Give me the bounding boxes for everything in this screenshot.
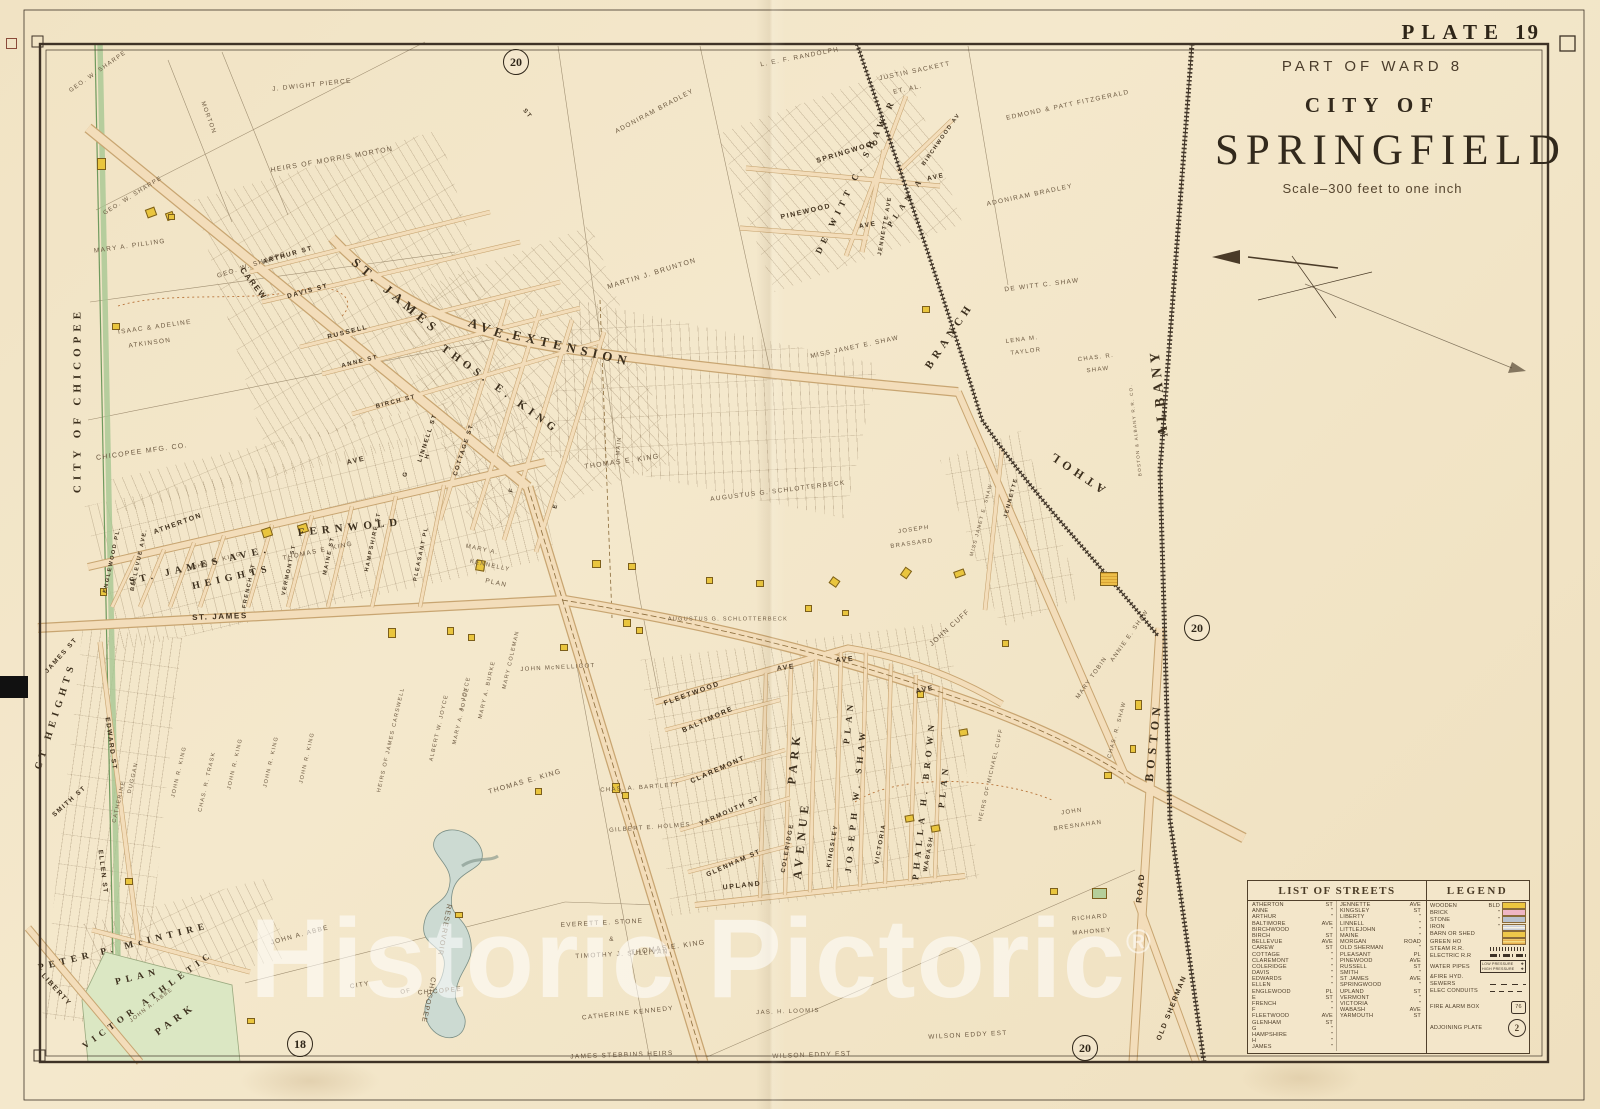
legend-item: SEWERS: [1430, 981, 1526, 988]
wooden-building: [842, 610, 849, 616]
minor-road: [200, 536, 224, 607]
street-suffix: ": [1331, 1044, 1333, 1050]
list-of-streets-title: LIST OF STREETS: [1248, 885, 1426, 897]
wooden-building: [388, 628, 396, 638]
wooden-building: [1002, 640, 1009, 647]
wooden-building: [1135, 700, 1142, 710]
wooden-building: [560, 644, 568, 651]
streets-column-2: JENNETTEAVEKINGSLEYSTLIBERTY"LINNELL"LIT…: [1336, 901, 1424, 1053]
wooden-building: [447, 627, 454, 635]
panel-titles: LIST OF STREETS LEGEND: [1248, 881, 1529, 901]
watermark: Historic Pictoric®: [250, 894, 1250, 1023]
wooden-building: [922, 306, 930, 313]
city-of-label: CITY OF: [1215, 93, 1530, 118]
legend-label: GREEN HO: [1430, 939, 1502, 945]
watermark-text: Historic Pictoric: [250, 896, 1126, 1021]
legend-item: WATER PIPESLOW PRESSURE✚HIGH PRESSURE✚: [1430, 960, 1526, 974]
wooden-building: [125, 878, 133, 885]
legend-swatch: [1502, 924, 1526, 931]
street-list-item: JAMES": [1252, 1044, 1333, 1050]
wooden-building: [622, 792, 629, 799]
registration-mark: [6, 38, 17, 49]
legend-swatch: [1502, 909, 1526, 916]
legend-item: ELEC CONDUITS: [1430, 988, 1526, 995]
wooden-building: [535, 788, 542, 795]
legend-label: WOODEN: [1430, 903, 1489, 909]
wooden-building: [805, 605, 812, 612]
street-suffix: ST: [1413, 1013, 1421, 1019]
wooden-building: [1130, 745, 1136, 753]
legend-label: SEWERS: [1430, 981, 1490, 987]
legend-label: ELECTRIC R.R: [1430, 953, 1490, 959]
atlas-map-page: GEO. W. SHARPEGEO. W. SHARPEGEO. W. SHAR…: [0, 0, 1600, 1109]
legend-label: IRON: [1430, 924, 1498, 930]
minor-roads: [112, 485, 941, 898]
legend-item: GREEN HO: [1430, 938, 1526, 945]
steam-rr-sample: [1490, 947, 1526, 951]
map-label: CITY OF CHICOPEE: [73, 307, 84, 493]
wooden-building: [468, 634, 475, 641]
legend-suffix: BLD: [1489, 903, 1500, 909]
ward-subtitle: PART OF WARD 8: [1215, 58, 1530, 75]
scale-note: Scale–300 feet to one inch: [1215, 181, 1530, 196]
conduit-sample: [1490, 991, 1526, 992]
wooden-building: [592, 560, 601, 568]
legend-item: BARN OR SHED: [1430, 931, 1526, 938]
legend-label: STONE: [1430, 917, 1498, 923]
legend-item: ADJOINING PLATE2: [1430, 1019, 1526, 1037]
city-title: SPRINGFIELD: [1215, 126, 1530, 175]
plate-label: PLATE: [1402, 20, 1505, 44]
wooden-building: [628, 563, 636, 570]
legend-label: BRICK: [1430, 910, 1498, 916]
wooden-building: [1100, 572, 1118, 586]
victor-athletic-park: [82, 952, 240, 1062]
legend-swatch: [1502, 938, 1526, 945]
legend-item: STONE": [1430, 916, 1526, 923]
electric-rr-sample: [1490, 954, 1526, 957]
adjoining-plate-marker: 18: [287, 1031, 313, 1057]
legend-label: BARN OR SHED: [1430, 931, 1502, 937]
street-name: HAMPSHIRE: [1252, 1032, 1287, 1038]
compass-rose: [1212, 250, 1526, 373]
fire-alarm-box-sample: 76: [1511, 1001, 1526, 1014]
street-list-item: YARMOUTHST: [1340, 1013, 1421, 1019]
sewer-sample: [1490, 984, 1526, 986]
legend-item: ELECTRIC R.R: [1430, 952, 1526, 959]
street-name: YARMOUTH: [1340, 1013, 1373, 1019]
legend-list: WOODENBLDBRICK"STONE"IRON"BARN OR SHEDGR…: [1430, 902, 1526, 1053]
legend-item: WOODENBLD: [1430, 902, 1526, 909]
wooden-building: [168, 214, 175, 220]
legend-item: BRICK": [1430, 909, 1526, 916]
legend-label: &FIRE HYD.: [1430, 974, 1526, 980]
legend-swatch: [1502, 931, 1526, 938]
adjoining-plate-marker: 20: [1184, 615, 1210, 641]
legend-label: STEAM R.R.: [1430, 946, 1490, 952]
wooden-building: [623, 619, 631, 627]
panel-divider: [1426, 881, 1427, 1053]
legend-suffix: ": [1498, 917, 1500, 923]
legend-label: ELEC CONDUITS: [1430, 988, 1490, 994]
adjoining-plate-marker: 20: [503, 49, 529, 75]
scan-edge-tab: [0, 676, 28, 698]
street-name: ENGLEWOOD: [1252, 989, 1291, 995]
watermark-reg-symbol: ®: [1126, 923, 1152, 961]
plate-number-heading: PLATE19: [1402, 20, 1540, 45]
legend-suffix: ": [1498, 924, 1500, 930]
map-title-block: PART OF WARD 8 CITY OF SPRINGFIELD Scale…: [1215, 58, 1530, 196]
legend-label: FIRE ALARM BOX: [1430, 1004, 1511, 1010]
paper-stain: [240, 1058, 380, 1104]
wooden-building: [706, 577, 713, 584]
legend-item: STEAM R.R.: [1430, 945, 1526, 952]
streets-column-1: ATHERTONSTANNE"ARTHUR"BALTIMOREAVEBIRCHW…: [1248, 901, 1336, 1053]
street-name: JAMES: [1252, 1044, 1272, 1050]
water-pipes-sample: LOW PRESSURE✚HIGH PRESSURE✚: [1480, 960, 1526, 973]
legend-item: FIRE ALARM BOX76: [1430, 1000, 1526, 1014]
streets-legend-panel: LIST OF STREETS LEGEND ATHERTONSTANNE"AR…: [1247, 880, 1530, 1054]
wooden-building: [636, 627, 643, 634]
legend-item: IRON": [1430, 924, 1526, 931]
wooden-building: [1104, 772, 1112, 779]
adjoining-plate-marker: 20: [1072, 1035, 1098, 1061]
paper-stain: [1240, 1056, 1360, 1100]
legend-title: LEGEND: [1426, 885, 1529, 897]
streets-list: ATHERTONSTANNE"ARTHUR"BALTIMOREAVEBIRCHW…: [1248, 901, 1426, 1053]
legend-swatch: [1502, 902, 1526, 909]
adjoining-plate-sample: 2: [1508, 1019, 1526, 1037]
legend-label: WATER PIPES: [1430, 964, 1480, 970]
plate-number: 19: [1515, 20, 1540, 44]
legend-suffix: ": [1498, 910, 1500, 916]
wooden-building: [97, 158, 106, 170]
legend-label: ADJOINING PLATE: [1430, 1025, 1508, 1031]
legend-swatch: [1502, 916, 1526, 923]
legend-item: &FIRE HYD.: [1430, 974, 1526, 981]
